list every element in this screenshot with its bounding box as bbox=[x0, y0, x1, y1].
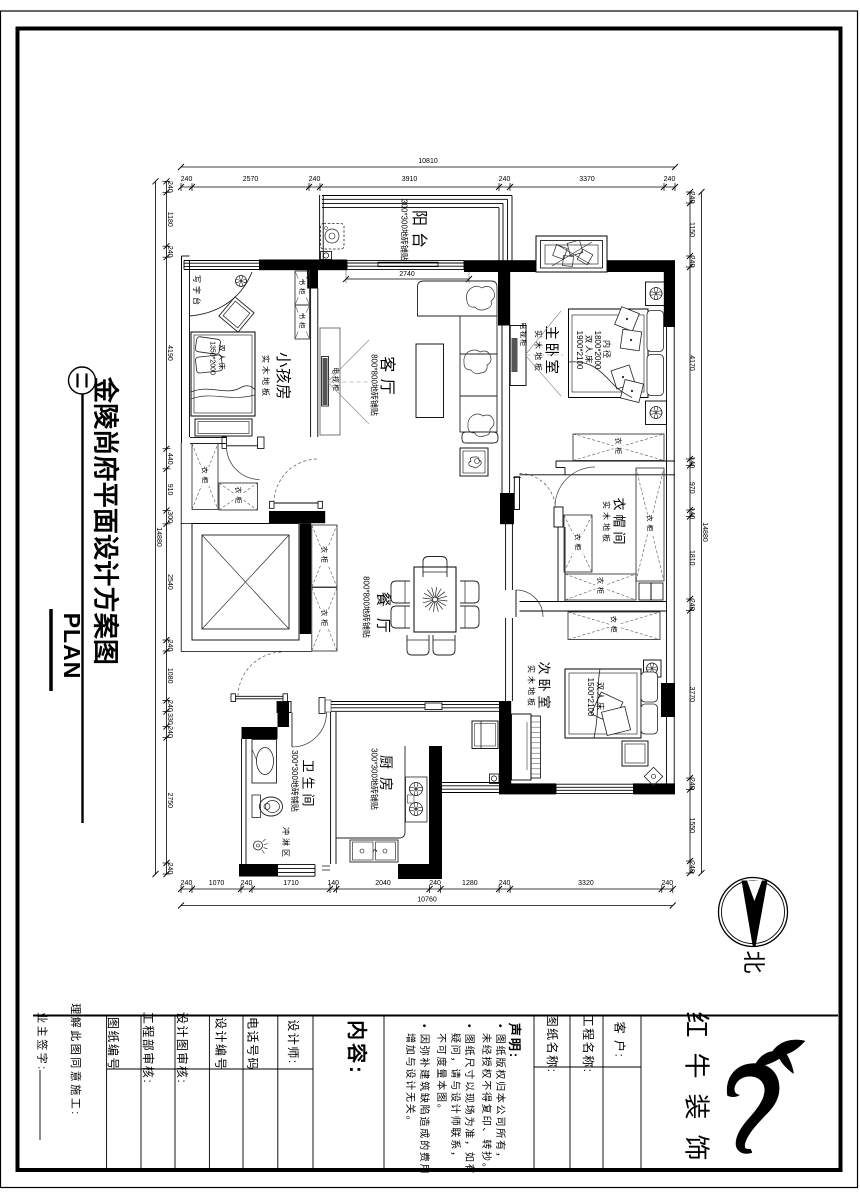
svg-text:4170: 4170 bbox=[688, 355, 695, 371]
svg-text:240: 240 bbox=[499, 880, 511, 887]
svg-text:3910: 3910 bbox=[402, 176, 418, 183]
svg-text:PLAN: PLAN bbox=[59, 613, 85, 680]
svg-text:300*300地砖铺贴: 300*300地砖铺贴 bbox=[400, 199, 410, 261]
svg-text:• 因弥补建筑缺陷造成的费用: • 因弥补建筑缺陷造成的费用 bbox=[418, 1024, 431, 1175]
svg-text:业主签字:: 业主签字: bbox=[36, 1012, 50, 1072]
svg-text:阳台: 阳台 bbox=[410, 210, 428, 254]
svg-text:不可度量本图。: 不可度量本图。 bbox=[435, 1033, 448, 1116]
svg-text:330: 330 bbox=[166, 713, 173, 725]
svg-text:衣柜: 衣柜 bbox=[234, 487, 243, 507]
svg-text:240: 240 bbox=[166, 181, 173, 193]
svg-text:1500*2100: 1500*2100 bbox=[586, 678, 595, 717]
svg-text:衣柜: 衣柜 bbox=[610, 616, 619, 636]
svg-text:设计编号: 设计编号 bbox=[214, 1017, 229, 1071]
svg-text:240: 240 bbox=[181, 880, 193, 887]
svg-text:800*800地砖铺贴: 800*800地砖铺贴 bbox=[362, 576, 372, 638]
svg-text:140: 140 bbox=[327, 880, 339, 887]
svg-text:衣柜: 衣柜 bbox=[596, 577, 605, 597]
svg-text:10810: 10810 bbox=[418, 158, 438, 165]
svg-text:衣柜: 衣柜 bbox=[614, 437, 623, 457]
svg-text:970: 970 bbox=[688, 482, 695, 494]
svg-text:240: 240 bbox=[166, 863, 173, 875]
svg-text:次卧室: 次卧室 bbox=[537, 661, 552, 712]
svg-text:内容:: 内容: bbox=[345, 1020, 369, 1076]
svg-text:1900*2100: 1900*2100 bbox=[575, 331, 584, 370]
svg-text:240: 240 bbox=[429, 880, 441, 887]
svg-text:2540: 2540 bbox=[166, 574, 173, 590]
svg-text:240: 240 bbox=[166, 700, 173, 712]
svg-text:电话号码: 电话号码 bbox=[246, 1017, 260, 1071]
svg-text:1710: 1710 bbox=[283, 880, 299, 887]
svg-text:金陵尚府平面设计方案图: 金陵尚府平面设计方案图 bbox=[91, 376, 121, 665]
svg-text:1280: 1280 bbox=[462, 880, 478, 887]
svg-text:北: 北 bbox=[741, 951, 767, 974]
svg-text:双人床: 双人床 bbox=[584, 335, 594, 365]
svg-text:300*300地砖铺贴: 300*300地砖铺贴 bbox=[290, 750, 300, 812]
svg-text:240: 240 bbox=[499, 176, 511, 183]
svg-text:1350*2000: 1350*2000 bbox=[209, 341, 216, 375]
svg-text:书柜: 书柜 bbox=[298, 279, 307, 298]
svg-text:14880: 14880 bbox=[155, 527, 162, 547]
svg-text:910: 910 bbox=[166, 484, 173, 496]
svg-text:写字台: 写字台 bbox=[192, 275, 202, 308]
svg-text:餐 厅: 餐 厅 bbox=[375, 592, 392, 637]
svg-text:衣柜: 衣柜 bbox=[320, 609, 329, 629]
svg-text:240: 240 bbox=[688, 778, 695, 790]
svg-text:240: 240 bbox=[688, 861, 695, 873]
svg-text:衣帽间: 衣帽间 bbox=[612, 497, 627, 548]
svg-text:工程名称:: 工程名称: bbox=[581, 1015, 596, 1074]
svg-text:衣柜: 衣柜 bbox=[646, 515, 655, 535]
svg-text:设计图审核:: 设计图审核: bbox=[175, 1012, 190, 1084]
svg-text:240: 240 bbox=[661, 880, 673, 887]
svg-text:240: 240 bbox=[309, 176, 321, 183]
svg-text:红牛装饰: 红牛装饰 bbox=[682, 1011, 712, 1175]
svg-text:电视柜: 电视柜 bbox=[519, 322, 528, 348]
svg-text:书柜: 书柜 bbox=[298, 313, 307, 332]
svg-text:440: 440 bbox=[166, 453, 173, 465]
svg-text:未经授权不得复印、转抄。: 未经授权不得复印、转抄。 bbox=[480, 1033, 493, 1175]
svg-text:4190: 4190 bbox=[166, 345, 173, 361]
svg-text:疑问，请与设计师联系，: 疑问，请与设计师联系， bbox=[449, 1033, 462, 1163]
svg-text:240: 240 bbox=[664, 176, 676, 183]
svg-text:1150: 1150 bbox=[688, 222, 695, 237]
svg-text:• 图纸版权归本公司所有，: • 图纸版权归本公司所有， bbox=[494, 1024, 507, 1164]
svg-text:240: 240 bbox=[688, 192, 695, 204]
svg-text:240: 240 bbox=[166, 640, 173, 652]
svg-text:电视柜: 电视柜 bbox=[332, 367, 341, 393]
svg-text:10760: 10760 bbox=[417, 897, 437, 904]
svg-text:图纸名称:: 图纸名称: bbox=[545, 1015, 560, 1074]
svg-text:300*300地砖铺贴: 300*300地砖铺贴 bbox=[370, 748, 380, 810]
svg-text:240: 240 bbox=[241, 880, 253, 887]
svg-text:1800*2000: 1800*2000 bbox=[593, 331, 602, 370]
svg-text:2740: 2740 bbox=[399, 271, 415, 278]
svg-text:实木地板: 实木地板 bbox=[261, 355, 271, 399]
svg-text:2570: 2570 bbox=[243, 176, 259, 183]
svg-text:厨 房: 厨 房 bbox=[378, 755, 394, 793]
svg-text:3370: 3370 bbox=[579, 176, 595, 183]
svg-text:3320: 3320 bbox=[578, 880, 594, 887]
svg-text:冲淋区: 冲淋区 bbox=[281, 827, 291, 860]
svg-text:小孩房: 小孩房 bbox=[274, 352, 292, 400]
svg-text:增加与设计无关。: 增加与设计无关。 bbox=[404, 1033, 417, 1127]
svg-text:衣柜: 衣柜 bbox=[320, 546, 329, 566]
svg-text:14880: 14880 bbox=[701, 522, 708, 542]
svg-text:工程部审核:: 工程部审核: bbox=[141, 1012, 156, 1084]
svg-text:300: 300 bbox=[166, 511, 173, 523]
svg-text:240: 240 bbox=[688, 256, 695, 268]
svg-text:理解此图同意施工:: 理解此图同意施工: bbox=[69, 1003, 83, 1117]
svg-text:内径: 内径 bbox=[602, 340, 612, 360]
svg-text:声明:: 声明: bbox=[507, 1022, 522, 1059]
svg-text:240: 240 bbox=[181, 176, 193, 183]
svg-text:设计师:: 设计师: bbox=[286, 1019, 300, 1064]
svg-text:140: 140 bbox=[688, 456, 695, 468]
svg-text:图纸编号: 图纸编号 bbox=[106, 1017, 121, 1071]
svg-text:140: 140 bbox=[688, 507, 695, 519]
svg-text:240: 240 bbox=[166, 726, 173, 738]
svg-text:1180: 1180 bbox=[166, 212, 173, 227]
svg-text:衣柜: 衣柜 bbox=[201, 467, 210, 487]
svg-text:衣柜: 衣柜 bbox=[574, 534, 583, 554]
svg-text:800*800地砖铺贴: 800*800地砖铺贴 bbox=[370, 354, 380, 416]
svg-text:双人床: 双人床 bbox=[596, 682, 606, 712]
svg-text:客 厅: 客 厅 bbox=[378, 356, 396, 395]
svg-text:卫生间: 卫生间 bbox=[301, 759, 316, 810]
svg-text:2750: 2750 bbox=[166, 792, 173, 808]
svg-text:• 图纸尺寸以现场为准，如有: • 图纸尺寸以现场为准，如有 bbox=[463, 1024, 476, 1175]
svg-text:240: 240 bbox=[688, 599, 695, 611]
svg-text:1550: 1550 bbox=[688, 817, 695, 833]
svg-text:实木地板: 实木地板 bbox=[602, 501, 612, 545]
svg-text:1080: 1080 bbox=[166, 668, 173, 684]
svg-text:主卧室: 主卧室 bbox=[543, 326, 560, 377]
svg-text:1070: 1070 bbox=[209, 880, 225, 887]
svg-text:3770: 3770 bbox=[688, 686, 695, 702]
svg-text:实木地板: 实木地板 bbox=[534, 330, 544, 374]
svg-text:2040: 2040 bbox=[375, 880, 391, 887]
svg-text:240: 240 bbox=[166, 246, 173, 258]
svg-text:1810: 1810 bbox=[688, 550, 695, 566]
svg-text:实木地板: 实木地板 bbox=[527, 665, 537, 709]
svg-text:双人床: 双人床 bbox=[218, 345, 227, 372]
svg-text:客 户:: 客 户: bbox=[613, 1022, 628, 1059]
